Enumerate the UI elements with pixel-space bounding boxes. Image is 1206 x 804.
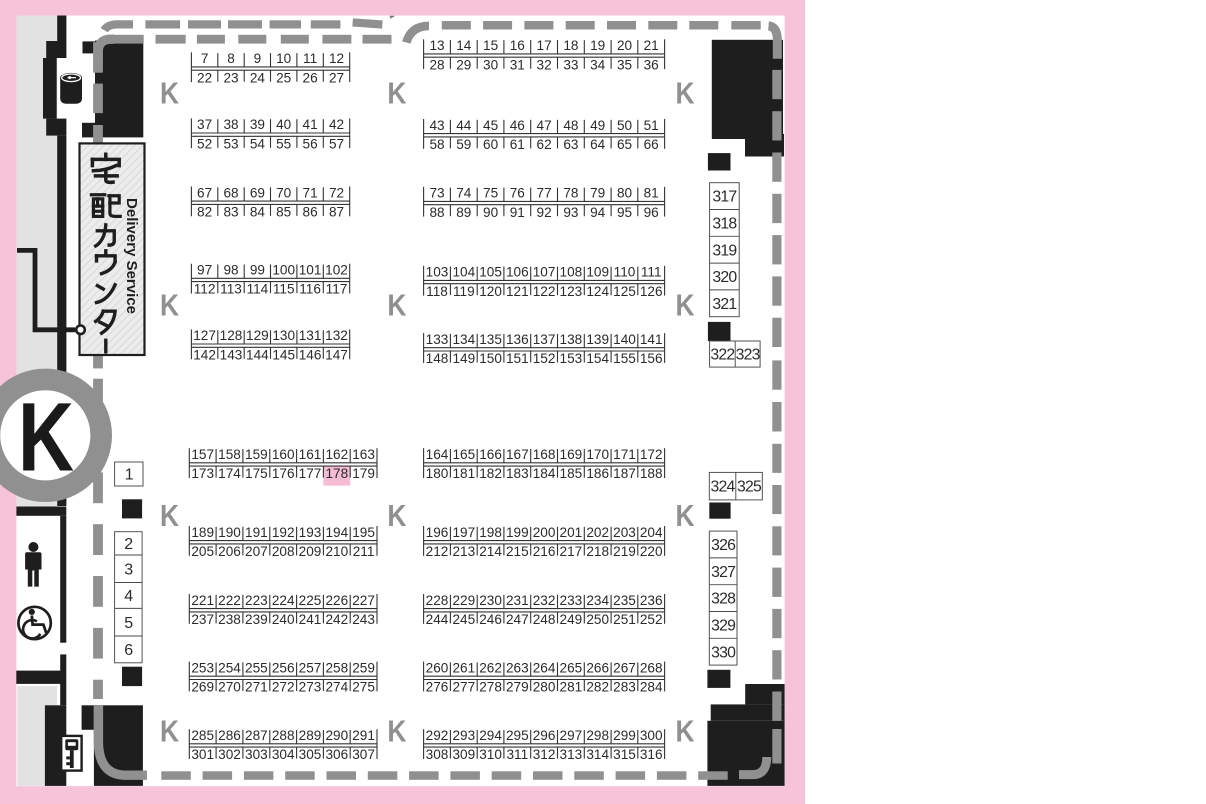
svg-text:132: 132	[325, 328, 348, 343]
svg-text:319: 319	[712, 242, 737, 259]
svg-text:14: 14	[456, 38, 472, 53]
svg-text:9: 9	[254, 51, 262, 66]
svg-text:159: 159	[245, 447, 268, 462]
svg-text:100: 100	[272, 263, 295, 278]
svg-text:127: 127	[193, 328, 216, 343]
svg-text:231: 231	[506, 593, 529, 608]
svg-text:134: 134	[452, 332, 475, 347]
svg-text:271: 271	[245, 680, 268, 695]
svg-text:106: 106	[506, 265, 529, 280]
svg-text:181: 181	[452, 466, 475, 481]
svg-text:45: 45	[483, 118, 498, 133]
svg-text:94: 94	[590, 205, 606, 220]
svg-text:303: 303	[245, 747, 268, 762]
svg-text:286: 286	[218, 728, 241, 743]
svg-text:58: 58	[429, 137, 444, 152]
svg-text:321: 321	[712, 296, 737, 313]
svg-text:86: 86	[303, 205, 318, 220]
svg-text:37: 37	[197, 117, 212, 132]
svg-text:173: 173	[191, 466, 214, 481]
svg-text:122: 122	[533, 284, 556, 299]
svg-text:109: 109	[586, 265, 609, 280]
svg-text:208: 208	[272, 544, 295, 559]
svg-text:K: K	[675, 77, 694, 111]
svg-text:200: 200	[533, 525, 556, 540]
svg-text:326: 326	[711, 537, 736, 554]
svg-text:136: 136	[506, 332, 529, 347]
svg-text:112: 112	[194, 282, 216, 297]
svg-text:174: 174	[218, 466, 241, 481]
svg-text:170: 170	[586, 447, 609, 462]
svg-text:118: 118	[426, 284, 448, 299]
svg-text:229: 229	[452, 593, 475, 608]
svg-text:164: 164	[426, 447, 449, 462]
svg-text:44: 44	[456, 118, 472, 133]
svg-text:312: 312	[533, 747, 556, 762]
svg-text:189: 189	[191, 525, 214, 540]
svg-text:246: 246	[479, 612, 502, 627]
svg-text:300: 300	[640, 728, 663, 743]
svg-text:72: 72	[329, 185, 344, 200]
svg-text:68: 68	[223, 185, 238, 200]
svg-text:259: 259	[352, 660, 375, 675]
svg-text:314: 314	[586, 747, 609, 762]
svg-text:265: 265	[560, 660, 583, 675]
svg-text:18: 18	[563, 38, 578, 53]
svg-text:60: 60	[483, 137, 499, 152]
svg-text:108: 108	[560, 265, 583, 280]
svg-text:187: 187	[613, 466, 636, 481]
svg-text:101: 101	[299, 263, 322, 278]
svg-text:50: 50	[617, 118, 633, 133]
svg-text:75: 75	[483, 186, 498, 201]
svg-text:145: 145	[272, 347, 295, 362]
svg-text:47: 47	[537, 118, 552, 133]
svg-text:269: 269	[191, 680, 214, 695]
svg-text:260: 260	[426, 660, 449, 675]
svg-text:307: 307	[352, 747, 375, 762]
svg-text:36: 36	[644, 57, 659, 72]
svg-text:214: 214	[479, 544, 502, 559]
svg-text:183: 183	[506, 466, 529, 481]
svg-text:184: 184	[533, 466, 556, 481]
svg-text:129: 129	[246, 328, 269, 343]
svg-text:28: 28	[429, 57, 444, 72]
svg-text:89: 89	[456, 205, 471, 220]
svg-text:82: 82	[197, 205, 212, 220]
svg-text:228: 228	[426, 593, 449, 608]
svg-text:306: 306	[325, 747, 348, 762]
svg-text:236: 236	[640, 593, 663, 608]
svg-text:67: 67	[197, 185, 212, 200]
svg-text:141: 141	[640, 332, 663, 347]
svg-text:280: 280	[533, 680, 556, 695]
svg-text:247: 247	[506, 612, 529, 627]
svg-text:205: 205	[191, 544, 214, 559]
svg-text:288: 288	[272, 728, 295, 743]
svg-text:257: 257	[299, 660, 322, 675]
svg-text:182: 182	[479, 466, 502, 481]
svg-text:10: 10	[276, 51, 292, 66]
svg-text:322: 322	[710, 347, 734, 364]
svg-text:11: 11	[303, 51, 317, 66]
svg-text:219: 219	[613, 544, 636, 559]
svg-text:261: 261	[452, 660, 475, 675]
svg-text:196: 196	[426, 525, 449, 540]
svg-text:234: 234	[586, 593, 609, 608]
svg-text:K: K	[387, 715, 406, 749]
svg-text:2: 2	[124, 536, 133, 553]
svg-text:99: 99	[250, 263, 265, 278]
svg-text:K: K	[387, 499, 406, 533]
svg-text:8: 8	[227, 51, 235, 66]
svg-text:244: 244	[426, 612, 449, 627]
svg-text:157: 157	[191, 447, 214, 462]
svg-text:243: 243	[352, 612, 375, 627]
svg-text:23: 23	[223, 70, 238, 85]
svg-text:172: 172	[640, 447, 663, 462]
svg-text:140: 140	[613, 332, 636, 347]
svg-text:262: 262	[479, 660, 502, 675]
svg-text:169: 169	[560, 447, 583, 462]
svg-text:51: 51	[644, 118, 659, 133]
svg-text:215: 215	[506, 544, 529, 559]
svg-text:242: 242	[325, 612, 348, 627]
svg-text:223: 223	[245, 593, 268, 608]
svg-text:160: 160	[272, 447, 295, 462]
svg-text:102: 102	[325, 263, 348, 278]
svg-text:80: 80	[617, 186, 633, 201]
svg-text:K: K	[675, 715, 694, 749]
svg-text:199: 199	[506, 525, 529, 540]
svg-text:204: 204	[640, 525, 663, 540]
svg-text:255: 255	[245, 660, 268, 675]
svg-text:212: 212	[426, 544, 449, 559]
svg-text:77: 77	[537, 186, 552, 201]
svg-text:238: 238	[218, 612, 241, 627]
svg-text:291: 291	[352, 728, 375, 743]
svg-text:35: 35	[617, 57, 632, 72]
svg-text:K: K	[160, 499, 179, 533]
svg-text:213: 213	[452, 544, 475, 559]
svg-text:202: 202	[586, 525, 609, 540]
svg-text:293: 293	[452, 728, 475, 743]
svg-text:K: K	[160, 289, 179, 323]
svg-text:64: 64	[590, 137, 606, 152]
svg-text:138: 138	[560, 332, 583, 347]
svg-text:48: 48	[563, 118, 578, 133]
svg-text:12: 12	[329, 51, 344, 66]
svg-text:73: 73	[429, 186, 444, 201]
svg-text:6: 6	[124, 642, 133, 659]
svg-text:328: 328	[711, 591, 736, 608]
svg-text:292: 292	[426, 728, 449, 743]
svg-text:133: 133	[426, 332, 449, 347]
svg-text:61: 61	[510, 137, 525, 152]
svg-text:126: 126	[640, 284, 663, 299]
svg-text:316: 316	[640, 747, 663, 762]
svg-text:289: 289	[299, 728, 322, 743]
svg-text:53: 53	[223, 136, 238, 151]
svg-text:39: 39	[250, 117, 265, 132]
svg-text:79: 79	[590, 186, 605, 201]
svg-text:K: K	[387, 289, 406, 323]
svg-text:98: 98	[223, 263, 238, 278]
svg-text:297: 297	[560, 728, 583, 743]
svg-text:4: 4	[124, 588, 133, 605]
svg-text:90: 90	[483, 205, 499, 220]
svg-text:K: K	[18, 382, 74, 491]
svg-text:104: 104	[452, 265, 475, 280]
svg-text:217: 217	[560, 544, 583, 559]
svg-text:54: 54	[250, 136, 266, 151]
svg-text:230: 230	[479, 593, 502, 608]
svg-text:284: 284	[640, 680, 663, 695]
svg-text:110: 110	[614, 265, 636, 280]
svg-text:185: 185	[560, 466, 583, 481]
svg-text:158: 158	[218, 447, 241, 462]
svg-text:78: 78	[563, 186, 578, 201]
svg-text:248: 248	[533, 612, 556, 627]
svg-text:227: 227	[352, 593, 375, 608]
svg-text:114: 114	[247, 282, 269, 297]
svg-text:119: 119	[453, 284, 475, 299]
svg-text:315: 315	[613, 747, 636, 762]
svg-text:63: 63	[563, 137, 578, 152]
svg-text:25: 25	[276, 70, 291, 85]
svg-text:320: 320	[712, 269, 737, 286]
svg-text:95: 95	[617, 205, 632, 220]
svg-text:250: 250	[586, 612, 609, 627]
svg-text:302: 302	[218, 747, 241, 762]
svg-text:70: 70	[276, 185, 292, 200]
svg-text:84: 84	[250, 205, 266, 220]
svg-text:57: 57	[329, 136, 344, 151]
svg-text:105: 105	[479, 265, 502, 280]
svg-text:211: 211	[353, 544, 375, 559]
svg-text:71: 71	[303, 185, 318, 200]
svg-text:1: 1	[125, 467, 134, 484]
svg-text:31: 31	[510, 57, 525, 72]
svg-text:207: 207	[245, 544, 268, 559]
svg-text:318: 318	[712, 216, 737, 233]
svg-text:324: 324	[711, 479, 736, 496]
svg-text:131: 131	[299, 328, 322, 343]
svg-text:195: 195	[352, 525, 375, 540]
svg-text:150: 150	[479, 351, 502, 366]
svg-text:16: 16	[510, 38, 525, 53]
svg-text:296: 296	[533, 728, 556, 743]
svg-text:42: 42	[329, 117, 344, 132]
svg-text:17: 17	[537, 38, 552, 53]
svg-text:121: 121	[506, 284, 529, 299]
svg-text:13: 13	[429, 38, 444, 53]
svg-text:285: 285	[191, 728, 214, 743]
svg-text:156: 156	[640, 351, 663, 366]
svg-text:162: 162	[325, 447, 348, 462]
svg-text:317: 317	[712, 189, 736, 206]
svg-text:3: 3	[124, 561, 133, 578]
svg-text:149: 149	[452, 351, 475, 366]
svg-text:137: 137	[533, 332, 556, 347]
svg-text:177: 177	[299, 466, 322, 481]
svg-text:220: 220	[640, 544, 663, 559]
svg-text:161: 161	[299, 447, 322, 462]
svg-text:175: 175	[245, 466, 268, 481]
svg-text:171: 171	[613, 447, 636, 462]
svg-text:301: 301	[191, 747, 214, 762]
svg-text:116: 116	[299, 282, 321, 297]
svg-text:69: 69	[250, 185, 265, 200]
svg-text:305: 305	[299, 747, 322, 762]
svg-text:15: 15	[483, 38, 498, 53]
svg-text:299: 299	[613, 728, 636, 743]
svg-text:210: 210	[325, 544, 348, 559]
svg-text:311: 311	[506, 747, 528, 762]
svg-text:327: 327	[711, 564, 735, 581]
svg-text:237: 237	[191, 612, 214, 627]
svg-text:154: 154	[586, 351, 609, 366]
svg-text:325: 325	[737, 479, 762, 496]
svg-text:76: 76	[510, 186, 525, 201]
svg-text:49: 49	[590, 118, 605, 133]
svg-text:165: 165	[452, 447, 475, 462]
svg-text:113: 113	[220, 282, 242, 297]
svg-text:87: 87	[329, 205, 344, 220]
svg-text:120: 120	[479, 284, 502, 299]
svg-text:29: 29	[456, 57, 471, 72]
svg-text:206: 206	[218, 544, 241, 559]
svg-text:88: 88	[429, 205, 444, 220]
svg-text:19: 19	[590, 38, 605, 53]
svg-text:130: 130	[272, 328, 295, 343]
svg-text:65: 65	[617, 137, 632, 152]
svg-text:K: K	[387, 77, 406, 111]
svg-text:26: 26	[303, 70, 318, 85]
svg-text:163: 163	[352, 447, 375, 462]
svg-text:117: 117	[326, 282, 348, 297]
svg-text:294: 294	[479, 728, 502, 743]
svg-text:263: 263	[506, 660, 529, 675]
svg-text:245: 245	[452, 612, 475, 627]
svg-text:128: 128	[220, 328, 243, 343]
svg-text:7: 7	[201, 51, 209, 66]
svg-text:81: 81	[644, 186, 659, 201]
svg-text:308: 308	[426, 747, 449, 762]
svg-text:33: 33	[563, 57, 578, 72]
svg-text:278: 278	[479, 680, 502, 695]
svg-text:201: 201	[560, 525, 583, 540]
svg-text:40: 40	[276, 117, 292, 132]
svg-text:273: 273	[299, 680, 322, 695]
svg-text:146: 146	[299, 347, 322, 362]
svg-text:193: 193	[299, 525, 322, 540]
svg-text:148: 148	[426, 351, 449, 366]
svg-text:221: 221	[191, 593, 214, 608]
svg-text:313: 313	[560, 747, 583, 762]
svg-text:142: 142	[193, 347, 216, 362]
svg-text:190: 190	[218, 525, 241, 540]
svg-text:103: 103	[426, 265, 449, 280]
svg-text:216: 216	[533, 544, 556, 559]
svg-text:83: 83	[223, 205, 238, 220]
svg-text:111: 111	[641, 265, 662, 280]
svg-text:277: 277	[452, 680, 475, 695]
svg-text:41: 41	[303, 117, 318, 132]
svg-text:K: K	[675, 289, 694, 323]
svg-text:268: 268	[640, 660, 663, 675]
svg-text:249: 249	[560, 612, 583, 627]
svg-text:74: 74	[456, 186, 472, 201]
svg-text:24: 24	[250, 70, 266, 85]
svg-text:124: 124	[586, 284, 609, 299]
svg-text:309: 309	[452, 747, 475, 762]
svg-text:59: 59	[456, 137, 471, 152]
svg-text:274: 274	[325, 680, 348, 695]
svg-text:21: 21	[644, 38, 659, 53]
svg-text:197: 197	[452, 525, 475, 540]
svg-text:123: 123	[560, 284, 583, 299]
svg-text:222: 222	[218, 593, 241, 608]
svg-text:258: 258	[325, 660, 348, 675]
svg-text:27: 27	[329, 70, 344, 85]
svg-text:279: 279	[506, 680, 529, 695]
svg-text:153: 153	[560, 351, 583, 366]
svg-text:151: 151	[506, 351, 529, 366]
svg-text:264: 264	[533, 660, 556, 675]
svg-text:92: 92	[537, 205, 552, 220]
svg-text:155: 155	[613, 351, 636, 366]
svg-text:310: 310	[479, 747, 502, 762]
svg-text:267: 267	[613, 660, 636, 675]
svg-text:186: 186	[586, 466, 609, 481]
svg-text:235: 235	[613, 593, 636, 608]
svg-text:139: 139	[586, 332, 609, 347]
svg-text:93: 93	[563, 205, 578, 220]
svg-text:298: 298	[586, 728, 609, 743]
svg-text:55: 55	[276, 136, 291, 151]
svg-text:43: 43	[429, 118, 444, 133]
svg-text:194: 194	[325, 525, 348, 540]
svg-text:52: 52	[197, 136, 212, 151]
svg-text:251: 251	[613, 612, 636, 627]
svg-text:281: 281	[560, 680, 583, 695]
svg-text:168: 168	[533, 447, 556, 462]
svg-text:179: 179	[352, 466, 375, 481]
svg-text:22: 22	[197, 70, 212, 85]
svg-text:226: 226	[325, 593, 348, 608]
svg-text:30: 30	[483, 57, 499, 72]
svg-text:K: K	[160, 715, 179, 749]
svg-text:85: 85	[276, 205, 291, 220]
svg-text:20: 20	[617, 38, 633, 53]
svg-text:256: 256	[272, 660, 295, 675]
svg-text:253: 253	[191, 660, 214, 675]
svg-text:191: 191	[245, 525, 268, 540]
svg-text:225: 225	[299, 593, 322, 608]
svg-text:275: 275	[352, 680, 375, 695]
svg-text:56: 56	[303, 136, 318, 151]
svg-text:167: 167	[506, 447, 529, 462]
svg-text:147: 147	[325, 347, 348, 362]
svg-text:K: K	[675, 499, 694, 533]
svg-text:152: 152	[533, 351, 556, 366]
svg-text:290: 290	[325, 728, 348, 743]
svg-text:192: 192	[272, 525, 295, 540]
svg-text:330: 330	[711, 644, 736, 661]
svg-text:287: 287	[245, 728, 268, 743]
svg-text:203: 203	[613, 525, 636, 540]
